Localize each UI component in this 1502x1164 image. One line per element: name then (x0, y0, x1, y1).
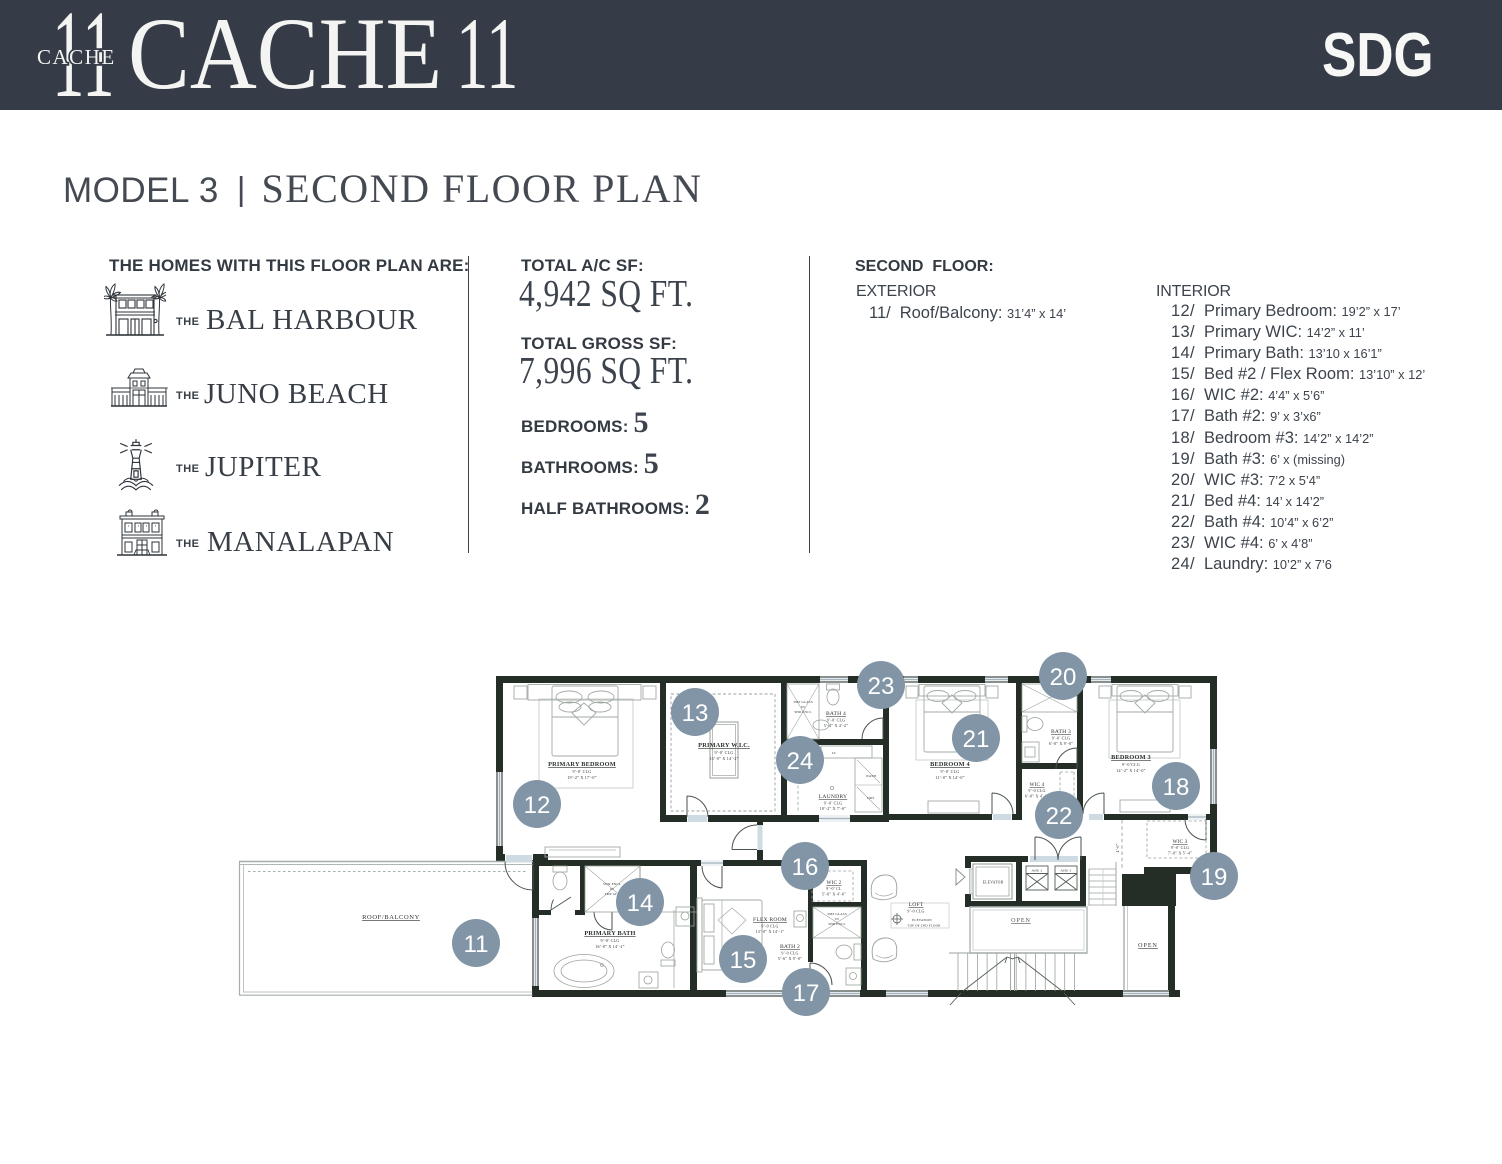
svg-text:9’-0 CLG: 9’-0 CLG (1028, 788, 1045, 793)
svg-text:9’-0’ CLG: 9’-0’ CLG (824, 801, 843, 806)
svg-text:BATH 2: BATH 2 (780, 944, 800, 950)
svg-text:PRIMARY W.I.C.: PRIMARY W.I.C. (698, 742, 750, 749)
svg-text:11: 11 (464, 931, 489, 958)
svg-text:20: 20 (1050, 664, 1077, 691)
svg-text:16: 16 (792, 854, 819, 881)
svg-text:15: 15 (730, 947, 757, 974)
svg-text:19: 19 (1201, 864, 1228, 891)
svg-text:9’-0’ CLG: 9’-0’ CLG (1052, 736, 1071, 741)
svg-text:9’-0 CLG: 9’-0 CLG (761, 924, 778, 929)
svg-text:9’-0’ CLG: 9’-0’ CLG (827, 718, 846, 723)
svg-text:12: 12 (524, 792, 551, 819)
svg-text:14: 14 (627, 890, 654, 917)
svg-text:TMP GLASS: TMP GLASS (793, 700, 813, 704)
svg-text:BATH 3: BATH 3 (1051, 729, 1071, 735)
svg-text:9’-0’ CLG: 9’-0’ CLG (601, 938, 620, 943)
svg-text:18: 18 (1163, 774, 1190, 801)
svg-text:TMP GLASS: TMP GLASS (827, 912, 847, 916)
svg-text:11: 11 (456, 0, 518, 110)
svg-text:13’-0” X 14’-2”: 13’-0” X 14’-2” (709, 756, 738, 761)
svg-text:23: 23 (868, 673, 895, 700)
svg-text:LOFT: LOFT (909, 902, 924, 908)
svg-text:9’-0’ CLG: 9’-0’ CLG (573, 769, 592, 774)
svg-text:11’-0” X 14’-0”: 11’-0” X 14’-0” (935, 775, 964, 780)
svg-text:4’-6”: 4’-6” (1116, 843, 1120, 852)
svg-text:24: 24 (787, 748, 814, 775)
svg-text:LAUNDRY: LAUNDRY (819, 794, 847, 800)
svg-text:9’-0’ CLG: 9’-0’ CLG (1171, 845, 1190, 850)
svg-text:5’-6” X 9’-0”: 5’-6” X 9’-0” (778, 956, 802, 961)
svg-text:13’-0” X 14’-1”: 13’-0” X 14’-1” (756, 929, 785, 934)
svg-text:21: 21 (963, 726, 990, 753)
svg-text:17: 17 (793, 980, 820, 1007)
svg-text:10’-2” X 7’-6”: 10’-2” X 7’-6” (820, 806, 847, 811)
svg-text:PRIMARY BATH: PRIMARY BATH (584, 930, 635, 937)
svg-text:BEDROOM 4: BEDROOM 4 (930, 761, 970, 768)
svg-text:IN: IN (610, 887, 614, 891)
svg-text:9’-0’ CL: 9’-0’ CL (826, 886, 842, 891)
svg-text:OPEN: OPEN (1138, 943, 1158, 949)
svg-text:16’-0” X 14’-2”: 16’-0” X 14’-2” (595, 944, 624, 949)
svg-text:DRY: DRY (867, 796, 875, 800)
svg-text:SWR ENCL: SWR ENCL (603, 882, 621, 886)
svg-text:SHR ENCL: SHR ENCL (828, 922, 845, 926)
svg-text:SHR ENCL: SHR ENCL (794, 710, 811, 714)
svg-text:WASH: WASH (866, 774, 877, 778)
svg-text:AHU 3: AHU 3 (1061, 869, 1072, 873)
svg-text:FLEX ROOM: FLEX ROOM (753, 917, 787, 923)
svg-text:9’-0 CLG: 9’-0 CLG (907, 909, 924, 914)
svg-text:CACHE: CACHE (128, 0, 442, 110)
svg-text:OPEN: OPEN (1011, 918, 1031, 924)
svg-text:5’-6” X 4’-6”: 5’-6” X 4’-6” (822, 892, 846, 897)
svg-text:BEDROOM 3: BEDROOM 3 (1111, 754, 1151, 761)
svg-text:9’-0’ CLG: 9’-0’ CLG (715, 750, 734, 755)
svg-text:13: 13 (682, 700, 709, 727)
svg-text:BATH 4: BATH 4 (826, 711, 846, 717)
svg-text:5’-4” X 4’-2”: 5’-4” X 4’-2” (824, 723, 848, 728)
svg-text:LT: LT (832, 751, 836, 755)
svg-text:9’-0 CLG: 9’-0 CLG (781, 951, 798, 956)
svg-text:CACHE: CACHE (37, 45, 116, 69)
svg-text:TOP OF 2ND FLOOR: TOP OF 2ND FLOOR (907, 924, 941, 928)
svg-text:7’-0” X 5’-4”: 7’-0” X 5’-4” (1168, 851, 1192, 856)
svg-text:9’-0’CLG: 9’-0’CLG (1122, 762, 1140, 767)
svg-text:IN: IN (835, 917, 839, 921)
svg-text:14’-2” X 14’-0”: 14’-2” X 14’-0” (1116, 768, 1145, 773)
svg-text:ELEVATION: ELEVATION (912, 918, 932, 922)
svg-text:19’-2” X 17’-0”: 19’-2” X 17’-0” (567, 775, 596, 780)
svg-text:22: 22 (1046, 803, 1073, 830)
svg-text:IN: IN (801, 705, 805, 709)
svg-text:ROOF/BALCONY: ROOF/BALCONY (362, 914, 420, 921)
svg-text:SDG: SDG (1322, 21, 1434, 91)
svg-text:9’-0’ CLG: 9’-0’ CLG (941, 769, 960, 774)
svg-text:AHU 2: AHU 2 (1032, 869, 1043, 873)
svg-text:PRIMARY BEDROOM: PRIMARY BEDROOM (548, 761, 616, 768)
svg-text:6’-0” X 9’-0”: 6’-0” X 9’-0” (1049, 741, 1073, 746)
svg-text:ELEVATOR: ELEVATOR (983, 881, 1004, 885)
